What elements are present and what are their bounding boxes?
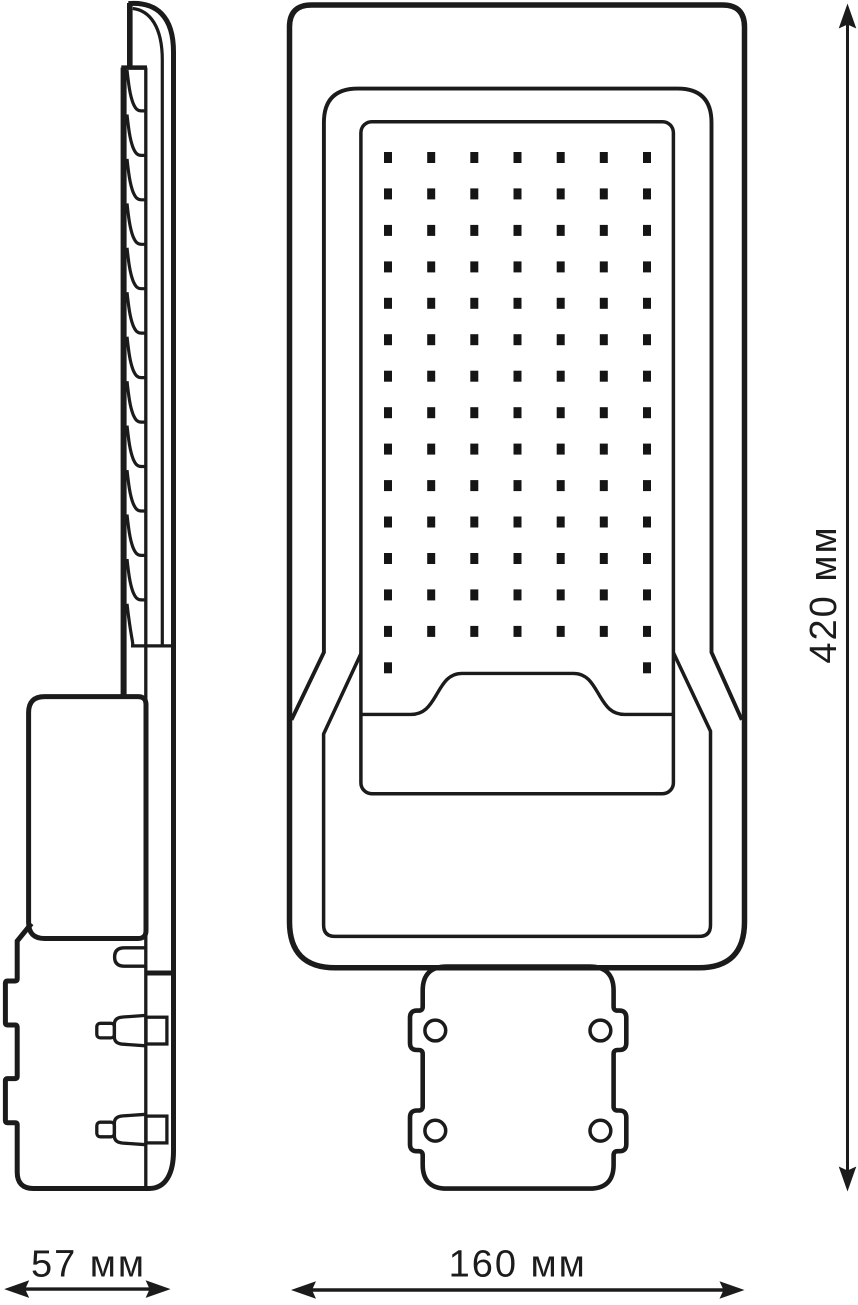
svg-text:420 мм: 420 мм [803, 525, 845, 663]
svg-text:57 мм: 57 мм [31, 1244, 146, 1286]
svg-text:160 мм: 160 мм [449, 1244, 587, 1286]
